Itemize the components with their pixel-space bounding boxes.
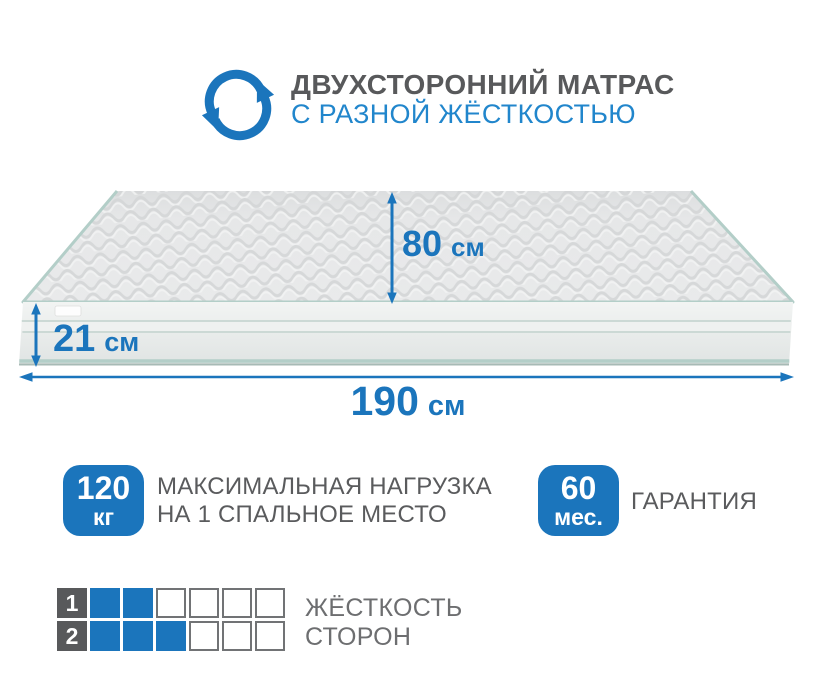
warranty-label-line1: ГАРАНТИЯ [631, 488, 757, 516]
hardness-row-number: 1 [57, 588, 87, 618]
max-load-label-line2: НА 1 СПАЛЬНОЕ МЕСТО [157, 501, 492, 529]
warranty-badge: 60 мес. [538, 465, 619, 536]
hardness-cell-empty [189, 588, 219, 618]
warranty-label: ГАРАНТИЯ [631, 488, 757, 516]
hardness-cell-filled [156, 621, 186, 651]
hardness-cell-empty [222, 621, 252, 651]
warranty-value: 60 [561, 472, 597, 504]
hardness-row-number: 2 [57, 621, 87, 651]
max-load-unit: кг [93, 506, 114, 529]
hardness-cell-filled [90, 588, 120, 618]
height-unit: см [104, 327, 139, 357]
length-value: 190 [350, 378, 418, 424]
hardness-row-side2: 2 [57, 621, 285, 651]
hardness-cell-filled [123, 621, 153, 651]
hardness-cell-empty [255, 621, 285, 651]
hardness-label-line1: ЖЁСТКОСТЬ [305, 594, 463, 623]
hardness-row-side1: 1 [57, 588, 285, 618]
max-load-badge: 120 кг [63, 465, 144, 536]
depth-value: 80 [402, 223, 442, 264]
max-load-value: 120 [77, 472, 130, 504]
max-load-label: МАКСИМАЛЬНАЯ НАГРУЗКА НА 1 СПАЛЬНОЕ МЕСТ… [157, 473, 492, 529]
depth-unit: см [451, 232, 485, 262]
hardness-cell-empty [255, 588, 285, 618]
hardness-label: ЖЁСТКОСТЬ СТОРОН [305, 594, 463, 652]
mattress-illustration [0, 0, 816, 440]
max-load-label-line1: МАКСИМАЛЬНАЯ НАГРУЗКА [157, 473, 492, 501]
depth-dimension-label: 80см [402, 226, 485, 262]
length-dimension-label: 190см [300, 381, 516, 422]
hardness-cell-empty [222, 588, 252, 618]
height-dimension-label: 21см [53, 320, 139, 358]
hardness-cell-empty [189, 621, 219, 651]
mattress-tag [55, 306, 81, 316]
hardness-cell-filled [123, 588, 153, 618]
mattress-infographic: ДВУХСТОРОННИЙ МАТРАС С РАЗНОЙ ЖЁСТКОСТЬЮ [0, 0, 816, 700]
hardness-cell-filled [90, 621, 120, 651]
warranty-unit: мес. [554, 506, 603, 529]
hardness-cell-empty [156, 588, 186, 618]
height-value: 21 [53, 318, 95, 360]
hardness-label-line2: СТОРОН [305, 623, 463, 652]
length-unit: см [428, 390, 466, 422]
